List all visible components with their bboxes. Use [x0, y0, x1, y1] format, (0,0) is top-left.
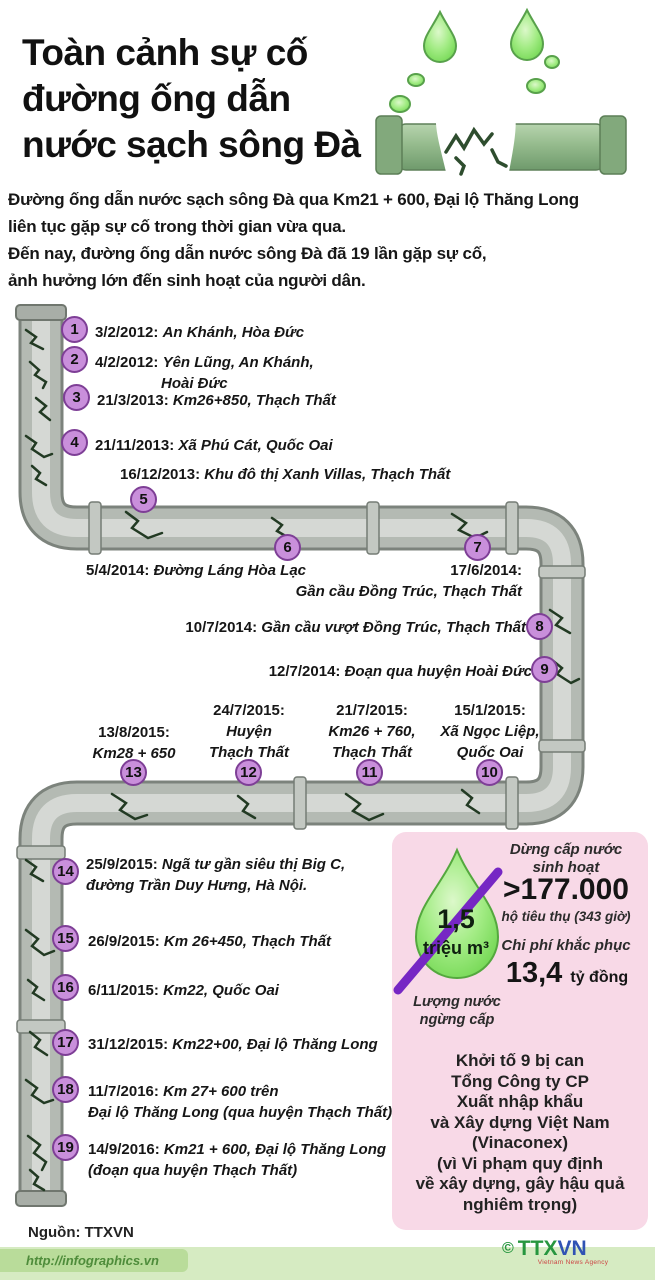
ttxvn-logo: ©TTXVN [502, 1238, 587, 1259]
marker-9: 9 [531, 656, 558, 683]
event-10: 15/1/2015:Xã Ngọc Liệp, Quốc Oai [438, 700, 542, 763]
event-2: 4/2/2012: Yên Lũng, An Khánh, Hoài Đức [95, 352, 314, 394]
marker-13: 13 [120, 759, 147, 786]
marker-14: 14 [52, 858, 79, 885]
event-12: 24/7/2015:Huyện Thạch Thất [209, 700, 289, 763]
marker-19: 19 [52, 1134, 79, 1161]
event-3: 21/3/2013: Km26+850, Thạch Thất [97, 390, 336, 411]
marker-17: 17 [52, 1029, 79, 1056]
water-volume-value: 1,5 [420, 905, 492, 933]
marker-3: 3 [63, 384, 90, 411]
event-4: 21/11/2013: Xã Phú Cát, Quốc Oai [95, 435, 333, 456]
event-6: 5/4/2014: Đường Láng Hòa Lạc [86, 560, 306, 581]
prosecution-note: Khởi tố 9 bị can Tổng Công ty CP Xuất nh… [398, 1051, 642, 1215]
marker-10: 10 [476, 759, 503, 786]
page-title: Toàn cảnh sự cố đường ống dẫn nước sạch … [22, 30, 402, 168]
event-13: 13/8/2015:Km28 + 650 [86, 722, 182, 764]
infographic-canvas: Toàn cảnh sự cố đường ống dẫn nước sạch … [0, 0, 655, 1280]
event-15: 26/9/2015: Km 26+450, Thạch Thất [88, 931, 331, 952]
outage-label: Dừng cấp nước sinh hoạt [496, 841, 636, 877]
repair-cost-label: Chi phí khắc phục [494, 937, 638, 955]
event-18: 11/7/2016: Km 27+ 600 trên Đại lộ Thăng … [88, 1081, 392, 1123]
marker-2: 2 [61, 346, 88, 373]
copyright-icon: © [502, 1240, 514, 1257]
marker-8: 8 [526, 613, 553, 640]
footer-url[interactable]: http://infographics.vn [26, 1253, 159, 1268]
marker-12: 12 [235, 759, 262, 786]
ttxvn-logo-caption: Vietnam News Agency [522, 1259, 624, 1266]
marker-7: 7 [464, 534, 491, 561]
event-19: 14/9/2016: Km21 + 600, Đại lộ Thăng Long… [88, 1139, 386, 1181]
marker-15: 15 [52, 925, 79, 952]
repair-cost-unit: tỷ đồng [570, 969, 628, 986]
event-1: 3/2/2012: An Khánh, Hòa Đức [95, 322, 304, 343]
marker-6: 6 [274, 534, 301, 561]
households-sub: hộ tiêu thụ (343 giờ) [488, 908, 644, 926]
event-17: 31/12/2015: Km22+00, Đại lộ Thăng Long [88, 1034, 378, 1055]
water-volume-unit: triệu m³ [412, 938, 500, 959]
event-11: 21/7/2015:Km26 + 760, Thạch Thất [322, 700, 422, 763]
event-8: 10/7/2014: Gần cầu vượt Đồng Trúc, Thạch… [170, 617, 526, 638]
repair-cost-value: 13,4 tỷ đồng [492, 957, 642, 994]
intro-paragraph: Đường ống dẫn nước sạch sông Đà qua Km21… [8, 186, 655, 294]
marker-16: 16 [52, 974, 79, 1001]
event-14: 25/9/2015: Ngã tư gần siêu thị Big C, đư… [86, 854, 345, 896]
event-9: 12/7/2014: Đoạn qua huyện Hoài Đức [220, 661, 532, 682]
event-5: 16/12/2013: Khu đô thị Xanh Villas, Thạc… [120, 464, 450, 485]
marker-5: 5 [130, 486, 157, 513]
marker-18: 18 [52, 1076, 79, 1103]
water-volume-caption: Lượng nước ngừng cấp [398, 993, 516, 1029]
event-16: 6/11/2015: Km22, Quốc Oai [88, 980, 279, 1001]
marker-4: 4 [61, 429, 88, 456]
broken-pipe-illustration [376, 10, 626, 174]
source-credit: Nguồn: TTXVN [28, 1224, 134, 1241]
marker-11: 11 [356, 759, 383, 786]
households-value: >177.000 [492, 874, 640, 906]
event-7: 17/6/2014: Gần cầu Đồng Trúc, Thạch Thất [282, 560, 522, 602]
marker-1: 1 [61, 316, 88, 343]
